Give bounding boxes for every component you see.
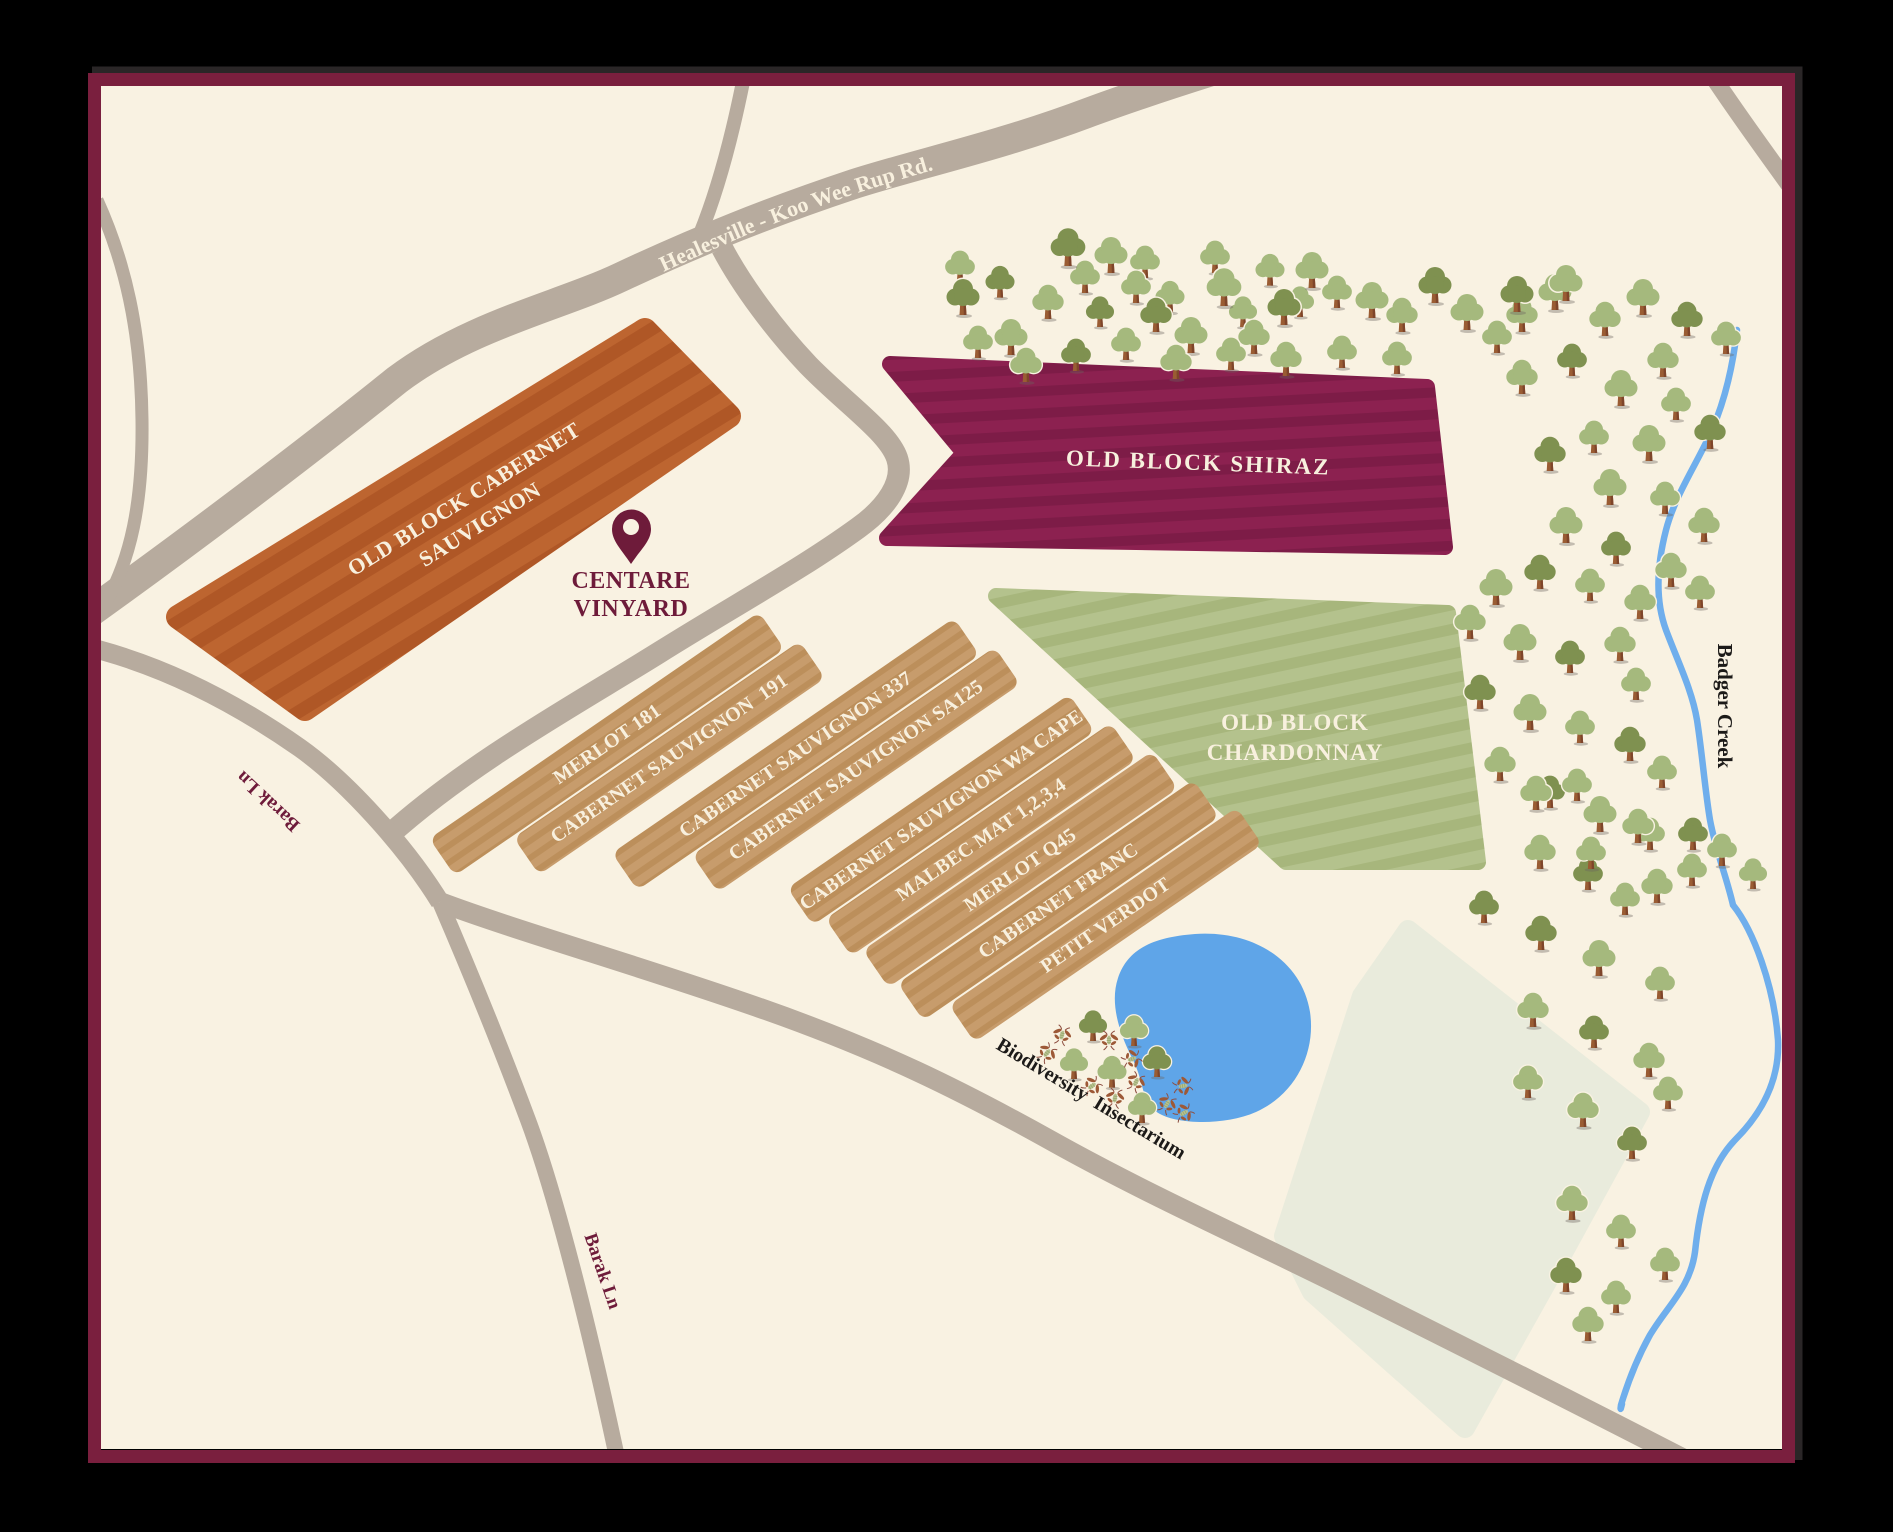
svg-text:CHARDONNAY: CHARDONNAY (1207, 740, 1384, 765)
svg-text:VINYARD: VINYARD (574, 596, 689, 622)
svg-text:OLD BLOCK: OLD BLOCK (1221, 710, 1369, 735)
svg-text:Badger Creek: Badger Creek (1713, 644, 1737, 769)
svg-text:CENTARE: CENTARE (571, 568, 690, 594)
